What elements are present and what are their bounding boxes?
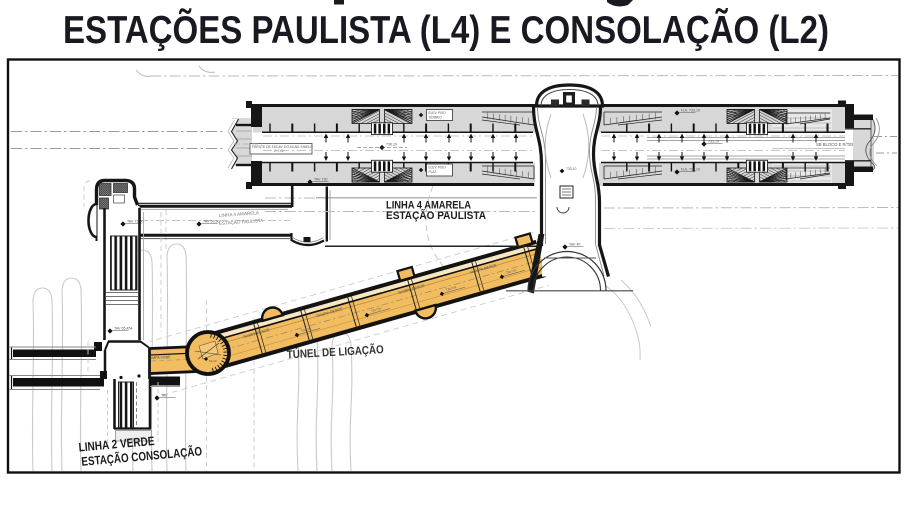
svg-text:TAV 4F: TAV 4F [569,243,581,247]
svg-text:ESTAÇÕES PAULISTA (L4) E CONSO: ESTAÇÕES PAULISTA (L4) E CONSOLAÇÃO (L2) [63,8,829,52]
svg-text:ELEV. PISO: ELEV. PISO [429,111,447,115]
svg-text:TÉRREO: TÉRREO [429,115,443,120]
svg-text:733,10: 733,10 [566,167,576,171]
svg-text:FRENTE DE ESCAV. DO ACAB. SHIE: FRENTE DE ESCAV. DO ACAB. SHIELD [252,145,313,149]
svg-text:ELEV. PISO: ELEV. PISO [429,166,447,170]
svg-text:736,10: 736,10 [386,143,397,147]
svg-text:62,43: 62,43 [209,359,217,363]
svg-text:Ø 9,46: Ø 9,46 [274,149,284,153]
svg-text:TAV 59,30: TAV 59,30 [203,220,219,224]
svg-text:TAV 730: TAV 730 [314,178,327,182]
svg-text:TAV: TAV [161,394,168,398]
svg-text:TAV 65,454: TAV 65,454 [114,327,132,331]
svg-text:PLAT.: PLAT. [429,170,437,174]
svg-text:N.A. 733,10: N.A. 733,10 [681,109,700,113]
svg-text:N.A. 733,10: N.A. 733,10 [681,168,700,172]
svg-text:TAV 72,00: TAV 72,00 [127,220,143,224]
svg-text:ESTAÇÃO PAULISTA: ESTAÇÃO PAULISTA [386,209,486,222]
svg-text:733,10: 733,10 [708,140,719,144]
